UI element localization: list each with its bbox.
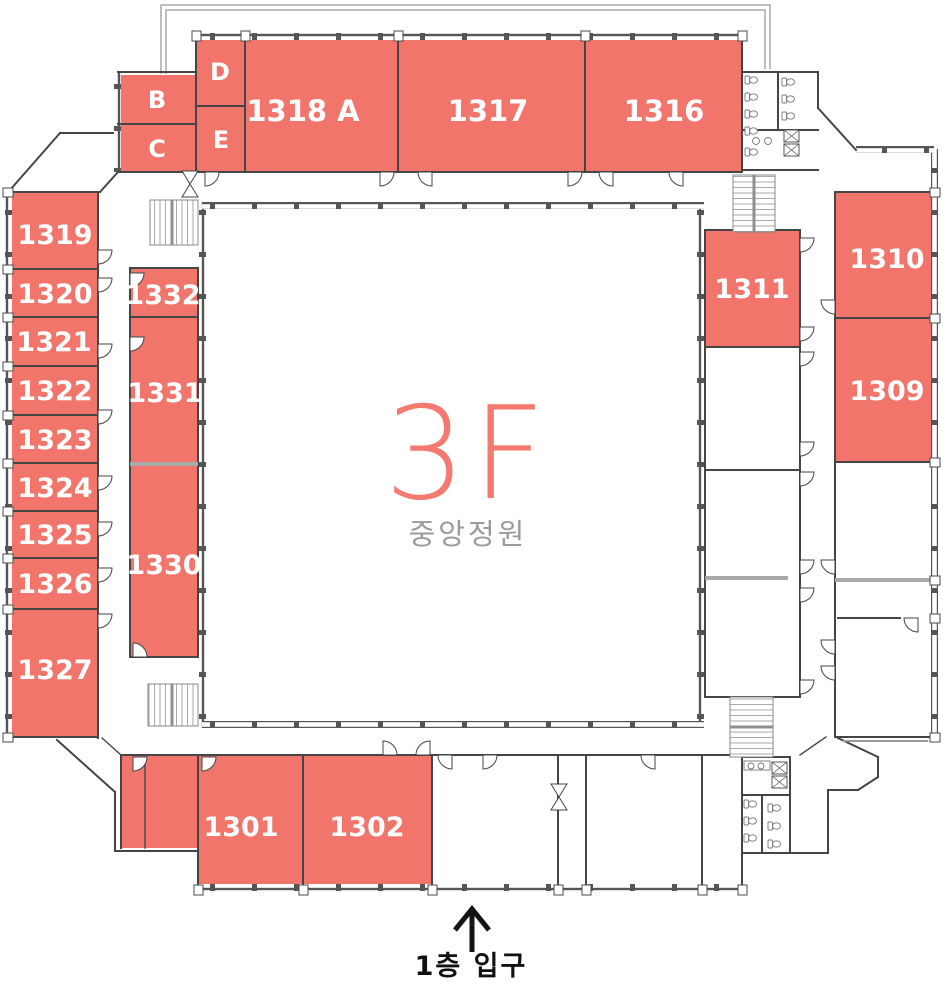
room-label-c: C: [148, 135, 166, 163]
room-label-1331: 1331: [127, 378, 202, 409]
room-label-1332: 1332: [125, 280, 200, 311]
floor-title: 3F: [384, 380, 551, 529]
room-label-1322: 1322: [17, 376, 92, 407]
room-label-1327: 1327: [17, 655, 92, 686]
up-arrow-icon: [455, 909, 489, 952]
room-label-d: D: [210, 58, 230, 86]
entrance-indicator: 1층 입구: [415, 909, 528, 982]
floor-plan-page: B C D E 1318 A 1317 1316 1319 1320 1321 …: [0, 0, 943, 991]
room-label-1321: 1321: [16, 327, 91, 358]
room-label-1330: 1330: [126, 550, 201, 581]
room-label-1316: 1316: [624, 94, 705, 128]
room-label-1318a: 1318 A: [246, 94, 360, 128]
room-label-1301: 1301: [203, 812, 278, 843]
room-block-right-outer: [835, 192, 935, 462]
entrance-label: 1층 입구: [415, 951, 528, 982]
room-label-1311: 1311: [714, 274, 789, 305]
stairs-bottom-right: [730, 697, 773, 757]
room-label-1302: 1302: [329, 812, 404, 843]
room-label-e: E: [213, 126, 229, 154]
restroom-bottom-right: [744, 761, 787, 848]
floor-plan-svg: B C D E 1318 A 1317 1316 1319 1320 1321 …: [0, 0, 943, 991]
restroom-top-right: [745, 76, 799, 156]
room-label-1309: 1309: [849, 376, 924, 407]
room-label-1310: 1310: [849, 244, 924, 275]
room-label-1326: 1326: [17, 569, 92, 600]
courtyard-label: 중앙정원: [409, 517, 528, 551]
room-label-b: B: [148, 86, 166, 114]
room-label-1325: 1325: [17, 520, 92, 551]
room-label-1320: 1320: [17, 279, 92, 310]
stairs-bottom-left: [148, 684, 198, 726]
stairs-top-left: [150, 200, 198, 245]
stairs-top-right: [733, 175, 775, 232]
room-label-1319: 1319: [17, 220, 92, 251]
room-label-1317: 1317: [448, 94, 529, 128]
room-label-1323: 1323: [17, 425, 92, 456]
room-label-1324: 1324: [17, 473, 92, 504]
